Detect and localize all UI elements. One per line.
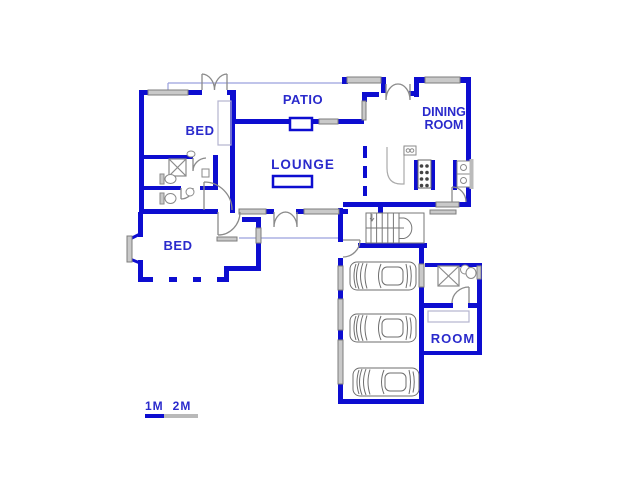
shower-icon xyxy=(438,266,459,286)
scale-bar-1m-segment xyxy=(145,414,164,418)
label-patio: PATIO xyxy=(263,93,343,106)
label-staff-room: ROOM xyxy=(413,332,493,345)
kitchen-sink-icon xyxy=(404,146,416,155)
wardrobe-outline xyxy=(218,101,231,145)
stove-icon xyxy=(418,160,431,188)
label-lounge: LOUNGE xyxy=(253,158,353,171)
floor-plan-drawing xyxy=(0,0,640,480)
cabinet-icon xyxy=(202,169,209,177)
label-dining-line2: ROOM xyxy=(404,119,484,132)
toilet-icon xyxy=(160,174,176,184)
openplan-divider xyxy=(363,146,367,196)
label-bedroom-bottom: BED xyxy=(138,239,218,252)
car-icon xyxy=(350,314,416,342)
label-dining-room: DINING ROOM xyxy=(404,106,484,132)
toilet-icon xyxy=(160,193,176,204)
scale-label-2m: 2M xyxy=(173,399,192,413)
label-bedroom-top: BED xyxy=(160,124,240,137)
bic-outline xyxy=(428,311,469,322)
basin-icon xyxy=(187,151,195,157)
staircase-icon xyxy=(366,213,424,243)
scale-labels: 1M 2M xyxy=(145,399,205,413)
braai-icon xyxy=(290,118,312,130)
car-icon xyxy=(350,262,416,290)
kitchen-counter-icon xyxy=(387,147,404,184)
scale-indicator: 1M 2M xyxy=(145,399,205,418)
car-icon xyxy=(353,368,419,396)
fireplace-icon xyxy=(273,176,312,187)
scale-bar xyxy=(145,414,198,418)
shower-icon xyxy=(169,159,186,176)
toilet-icon xyxy=(466,266,481,279)
oven-icon xyxy=(457,159,474,189)
floor-plan: PATIO DINING ROOM BED LOUNGE BED ROOM 1M… xyxy=(0,0,640,480)
scale-bar-2m-segment xyxy=(164,414,198,418)
scale-label-1m: 1M xyxy=(145,399,164,413)
